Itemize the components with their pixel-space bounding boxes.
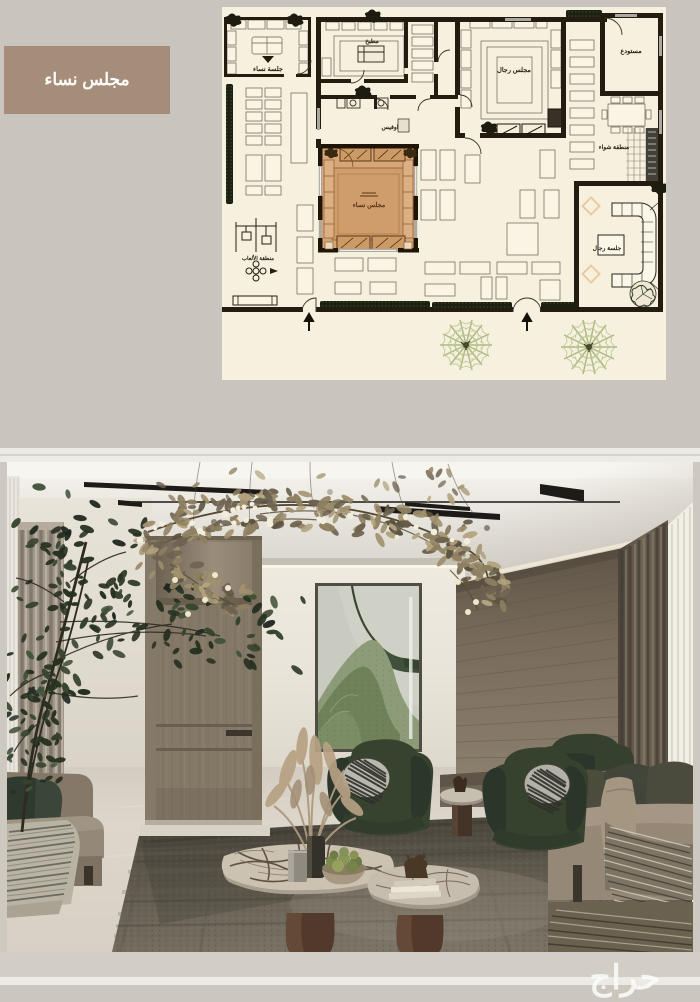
svg-text:مطبخ: مطبخ [365, 38, 379, 45]
svg-text:مجلس رجال: مجلس رجال [497, 66, 531, 74]
svg-text:اوفيس: اوفيس [382, 124, 399, 131]
svg-text:جلسة نساء: جلسة نساء [253, 65, 283, 73]
svg-text:مستودع: مستودع [620, 48, 642, 55]
svg-text:جلسة رجال: جلسة رجال [593, 245, 622, 252]
svg-text:منطقة شواء: منطقة شواء [599, 144, 629, 151]
svg-text:مجلس نساء: مجلس نساء [353, 201, 386, 209]
